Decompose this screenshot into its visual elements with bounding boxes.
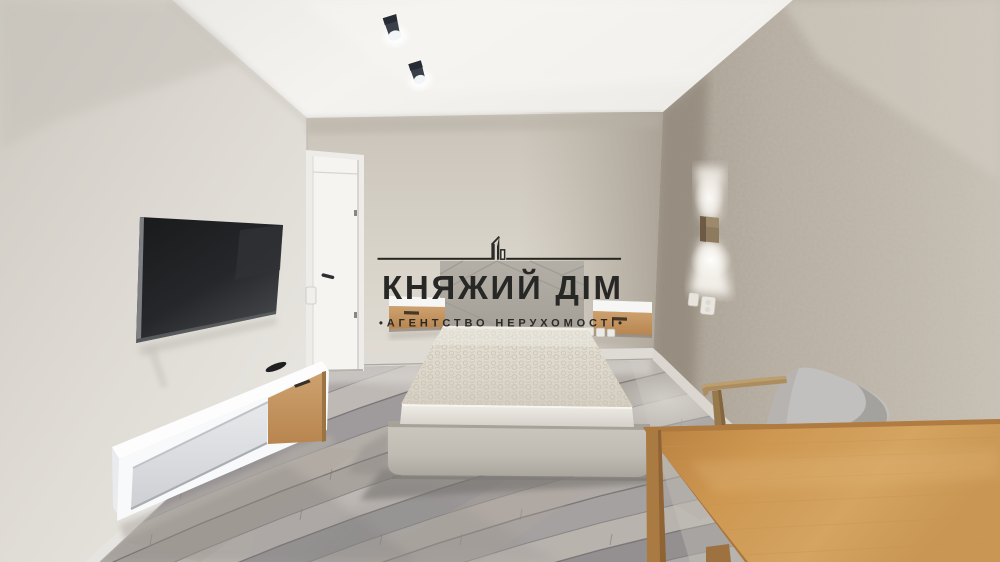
svg-text:КНЯЖИЙ ДІМ: КНЯЖИЙ ДІМ [382,268,621,306]
